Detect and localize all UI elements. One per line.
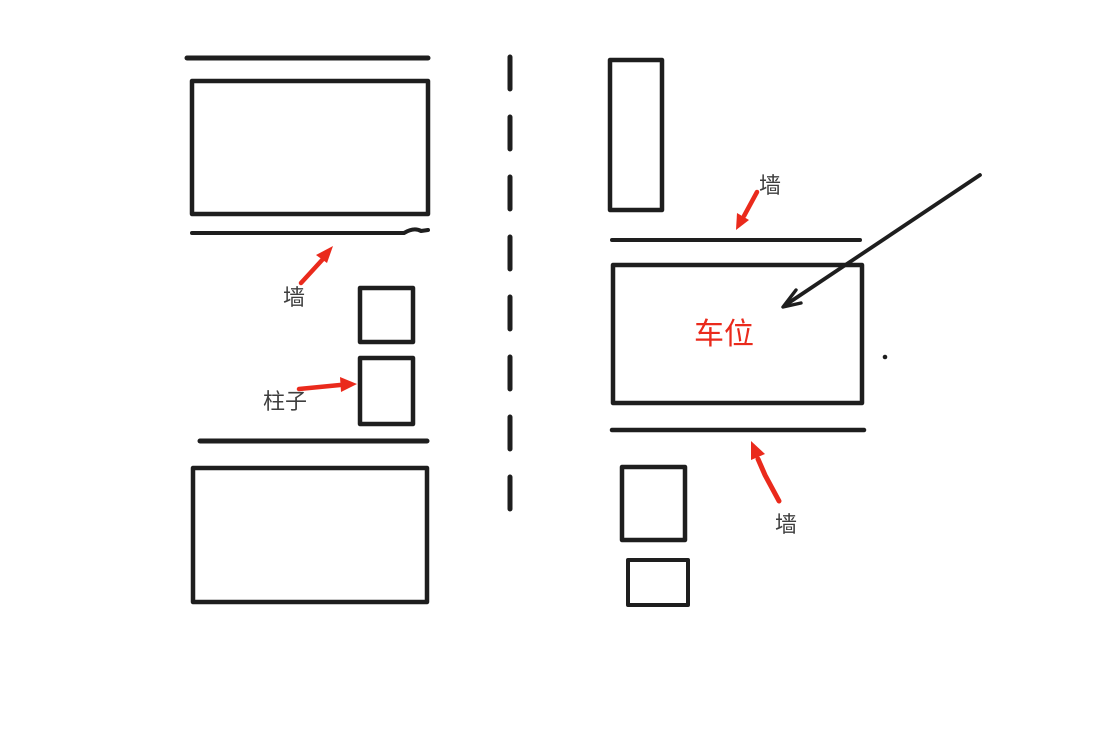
red-arrow-wall-top-right-shaft [744, 192, 757, 216]
pillar-square-top [360, 288, 413, 342]
pillar-label: 柱子 [263, 390, 307, 415]
red-arrow-wall-left-head [316, 246, 333, 263]
wall-label-bottom-right: 墙 [775, 513, 797, 538]
building-rect-bottom-left [193, 468, 427, 602]
red-arrow-wall-left [301, 246, 333, 283]
building-rect-top-left [192, 81, 428, 214]
parking-space-label: 车位 [694, 317, 754, 352]
pillar-square-bottom [360, 358, 413, 424]
right-zone: 墙 车位 [610, 60, 980, 605]
square-bottom-right-2 [628, 560, 688, 605]
parking-sketch-diagram: 墙 柱子 墙 [0, 0, 1107, 732]
wall-label-top-right: 墙 [759, 174, 781, 199]
red-arrow-wall-top-right [736, 192, 757, 230]
red-arrow-wall-bottom-right [751, 441, 779, 501]
red-arrow-wall-left-shaft [301, 259, 323, 283]
red-arrow-pillar-head [340, 377, 357, 392]
wall-label-left: 墙 [283, 286, 305, 311]
column-rect-top-right [610, 60, 662, 210]
red-arrow-wall-bottom-right-shaft [758, 459, 779, 501]
left-zone: 墙 柱子 [187, 58, 428, 602]
red-arrow-pillar [299, 377, 357, 392]
dot-mark [883, 355, 888, 360]
wall-line-mid-left [192, 229, 428, 233]
red-arrow-pillar-shaft [299, 385, 340, 389]
square-bottom-right-1 [622, 467, 685, 540]
